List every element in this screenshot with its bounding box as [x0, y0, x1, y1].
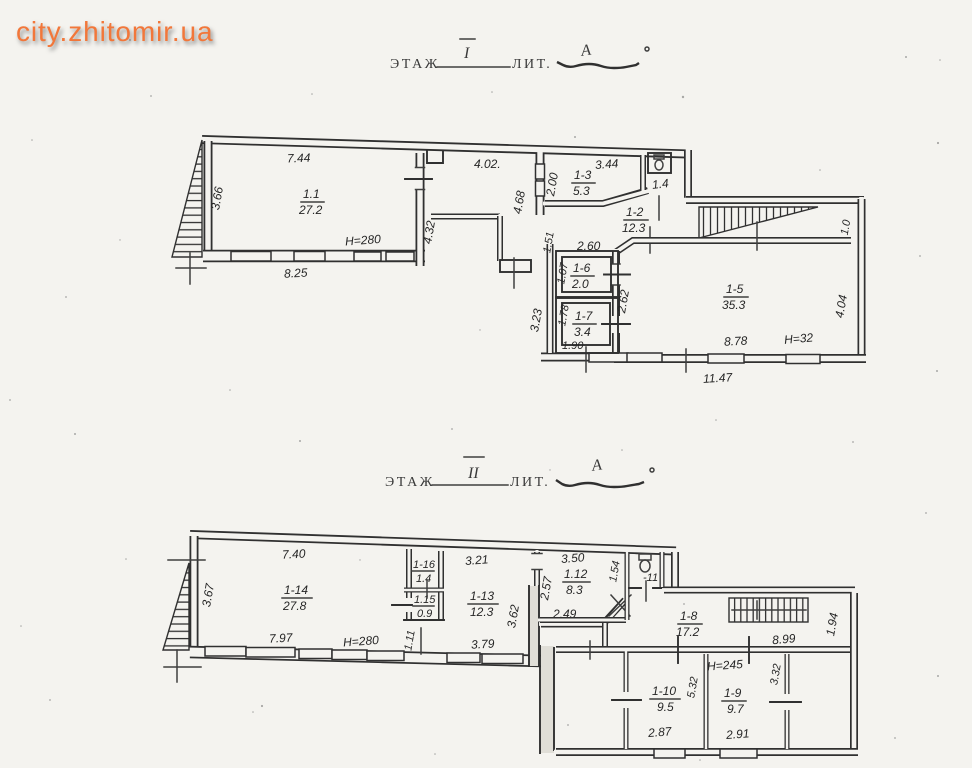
svg-text:35.3: 35.3	[722, 298, 746, 312]
svg-text:А: А	[579, 42, 592, 60]
svg-text:1-3: 1-3	[574, 168, 592, 182]
svg-text:1-16: 1-16	[413, 559, 436, 571]
svg-text:7.44: 7.44	[287, 151, 311, 166]
svg-text:1-7: 1-7	[575, 309, 594, 323]
svg-text:ЛИТ.: ЛИТ.	[510, 475, 550, 490]
svg-text:27.8: 27.8	[282, 599, 307, 613]
svg-text:3.4: 3.4	[574, 325, 591, 339]
svg-text:1.78: 1.78	[556, 303, 572, 327]
svg-text:3.32: 3.32	[768, 663, 784, 686]
svg-text:Н=280: Н=280	[345, 232, 382, 248]
svg-text:4.32: 4.32	[420, 219, 438, 245]
svg-text:1.94: 1.94	[823, 611, 841, 637]
svg-text:ЭТАЖ: ЭТАЖ	[385, 475, 435, 490]
svg-text:1.1: 1.1	[303, 187, 320, 201]
svg-text:1-13: 1-13	[470, 589, 494, 603]
svg-text:12.3: 12.3	[470, 605, 494, 619]
svg-text:5.32: 5.32	[685, 676, 701, 699]
svg-text:2.62: 2.62	[614, 288, 632, 315]
svg-text:3.67: 3.67	[199, 581, 217, 608]
svg-text:1-9: 1-9	[724, 686, 742, 700]
svg-text:II: II	[467, 465, 479, 482]
svg-text:7.40: 7.40	[282, 547, 306, 562]
svg-text:1.54: 1.54	[607, 560, 623, 583]
svg-text:8.99: 8.99	[772, 631, 797, 647]
svg-text:2.00: 2.00	[543, 171, 561, 198]
svg-text:ЭТАЖ: ЭТАЖ	[390, 57, 440, 72]
svg-text:1.07: 1.07	[555, 261, 571, 285]
svg-text:12.3: 12.3	[622, 221, 646, 235]
svg-text:8.78: 8.78	[724, 334, 748, 349]
svg-text:1-6: 1-6	[573, 261, 591, 275]
svg-text:3.44: 3.44	[595, 156, 620, 172]
svg-text:2.57: 2.57	[537, 574, 555, 602]
svg-text:3.21: 3.21	[465, 552, 489, 568]
svg-text:0.9: 0.9	[417, 608, 432, 620]
svg-text:17.2: 17.2	[676, 625, 700, 639]
svg-text:3.50: 3.50	[561, 550, 586, 566]
svg-text:4.68: 4.68	[510, 189, 528, 215]
svg-text:2.91: 2.91	[725, 726, 750, 742]
svg-text:27.2: 27.2	[298, 203, 323, 217]
svg-text:2.0: 2.0	[571, 277, 589, 291]
svg-text:Н=32: Н=32	[784, 330, 814, 347]
svg-text:1-14: 1-14	[284, 583, 308, 597]
svg-text:3.23: 3.23	[527, 307, 545, 333]
svg-text:2.60: 2.60	[576, 239, 601, 253]
svg-text:ЛИТ.: ЛИТ.	[512, 57, 552, 72]
svg-text:1.4: 1.4	[416, 573, 431, 585]
svg-text:8.25: 8.25	[284, 266, 308, 281]
svg-text:11.47: 11.47	[703, 370, 734, 386]
svg-text:9.7: 9.7	[727, 702, 745, 716]
svg-text:1.12: 1.12	[564, 567, 588, 581]
svg-text:I: I	[463, 45, 470, 62]
svg-text:1-2: 1-2	[626, 205, 644, 219]
svg-text:9.5: 9.5	[657, 700, 674, 714]
svg-text:7.97: 7.97	[269, 630, 294, 645]
svg-text:1.51: 1.51	[541, 231, 557, 254]
svg-text:4.04: 4.04	[832, 293, 850, 319]
svg-text:2.87: 2.87	[647, 724, 674, 740]
svg-text:Н=245: Н=245	[707, 657, 744, 673]
svg-text:3.66: 3.66	[208, 185, 226, 211]
svg-text:4.02.: 4.02.	[474, 157, 501, 171]
svg-text:3.62: 3.62	[504, 603, 522, 629]
svg-text:1.11: 1.11	[402, 629, 417, 651]
svg-text:А: А	[590, 457, 603, 475]
svg-text:1-8: 1-8	[680, 609, 698, 623]
svg-text:5.3: 5.3	[573, 184, 590, 198]
svg-text:1.90: 1.90	[562, 340, 584, 352]
svg-text:8.3: 8.3	[566, 583, 583, 597]
svg-text:1-10: 1-10	[652, 684, 676, 698]
svg-text:3.79: 3.79	[471, 637, 495, 652]
svg-text:Н=280: Н=280	[343, 633, 380, 649]
svg-text:1.4: 1.4	[651, 176, 669, 192]
svg-text:-11: -11	[643, 572, 658, 584]
svg-text:1.15: 1.15	[414, 594, 436, 606]
svg-text:1.0: 1.0	[839, 218, 854, 236]
svg-text:1-5: 1-5	[726, 282, 744, 296]
